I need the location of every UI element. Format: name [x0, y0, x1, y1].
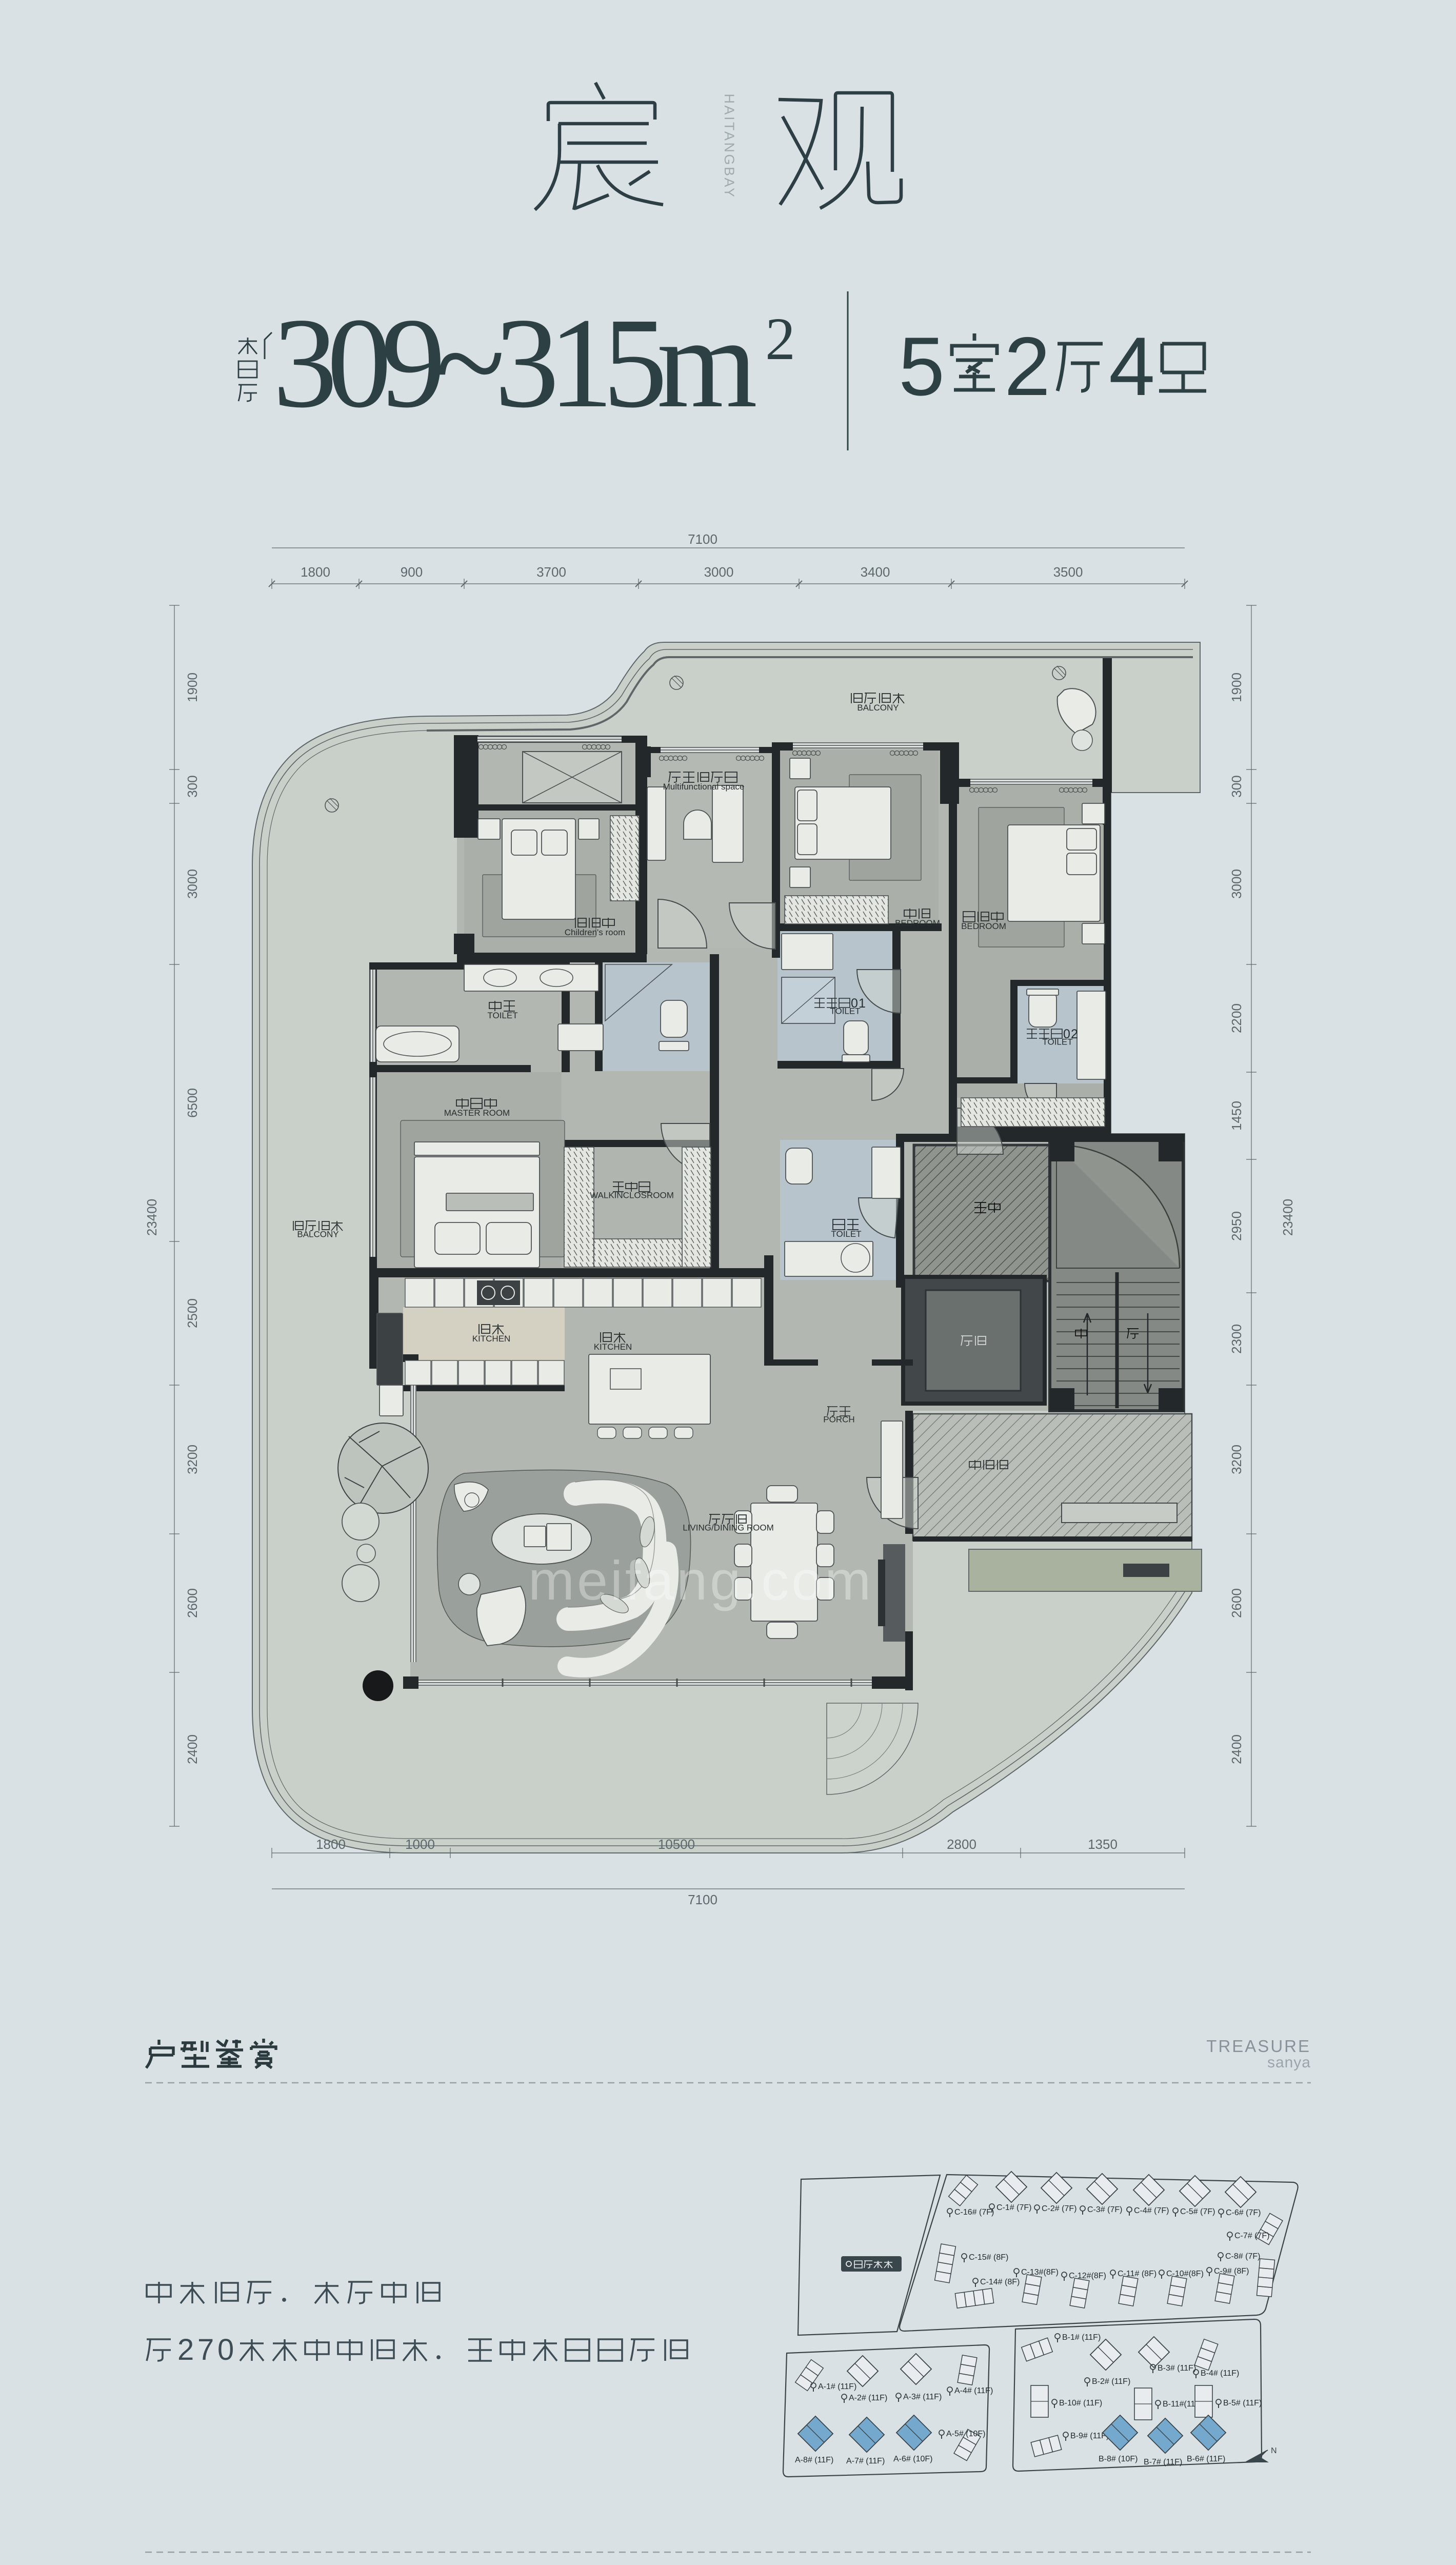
svg-text:1900: 1900	[185, 673, 200, 702]
svg-text:A-2# (11F): A-2# (11F)	[849, 2394, 887, 2402]
svg-text:3500: 3500	[1053, 564, 1083, 580]
svg-text:PORCH: PORCH	[823, 1414, 854, 1424]
svg-text:C-12#(8F): C-12#(8F)	[1069, 2272, 1106, 2280]
svg-text:1350: 1350	[1088, 1837, 1118, 1852]
svg-text:B-5# (11F): B-5# (11F)	[1223, 2399, 1262, 2408]
svg-text:meifang.com: meifang.com	[528, 1549, 873, 1611]
svg-text:B-10# (11F): B-10# (11F)	[1059, 2399, 1102, 2408]
svg-text:6500: 6500	[185, 1088, 200, 1118]
svg-text:LIVING/DINING ROOM: LIVING/DINING ROOM	[683, 1523, 774, 1532]
svg-text:2950: 2950	[1229, 1211, 1244, 1241]
svg-text:3000: 3000	[185, 869, 200, 899]
svg-text:C-13#(8F): C-13#(8F)	[1021, 2268, 1059, 2277]
svg-text:0: 0	[217, 2333, 234, 2366]
svg-text:C-9# (8F): C-9# (8F)	[1214, 2267, 1249, 2276]
svg-text:sanya: sanya	[1267, 2054, 1311, 2071]
svg-text:TOILET: TOILET	[487, 1011, 517, 1020]
svg-text:HAITANGBAY: HAITANGBAY	[722, 93, 737, 199]
svg-text:C-7# (7F): C-7# (7F)	[1234, 2232, 1269, 2240]
svg-text:10500: 10500	[658, 1837, 695, 1852]
svg-text:B-1# (11F): B-1# (11F)	[1062, 2333, 1101, 2342]
svg-text:300: 300	[185, 775, 200, 797]
svg-text:3200: 3200	[185, 1445, 200, 1474]
svg-text:2600: 2600	[185, 1588, 200, 1618]
svg-text:309~315m: 309~315m	[273, 291, 757, 435]
svg-text:Multifunctional space: Multifunctional space	[663, 782, 745, 792]
svg-text:B-7# (11F): B-7# (11F)	[1144, 2458, 1182, 2467]
svg-text:C-8# (7F): C-8# (7F)	[1225, 2252, 1260, 2261]
svg-text:23400: 23400	[144, 1199, 159, 1236]
svg-text:A-8# (11F): A-8# (11F)	[795, 2456, 833, 2464]
svg-text:C-11# (8F): C-11# (8F)	[1118, 2270, 1156, 2278]
svg-text:2300: 2300	[1229, 1324, 1244, 1354]
svg-text:300: 300	[1229, 775, 1244, 797]
svg-text:BEDROOM: BEDROOM	[895, 918, 940, 928]
svg-text:1450: 1450	[1229, 1101, 1244, 1131]
svg-text:BALCONY: BALCONY	[857, 703, 899, 713]
svg-text:B-8# (10F): B-8# (10F)	[1099, 2455, 1138, 2463]
svg-text:2800: 2800	[947, 1837, 976, 1852]
svg-text:2200: 2200	[1229, 1003, 1244, 1033]
svg-text:C-10#(8F): C-10#(8F)	[1166, 2270, 1204, 2278]
svg-text:BALCONY: BALCONY	[297, 1229, 338, 1239]
svg-text:1800: 1800	[301, 564, 330, 580]
svg-text:A-7# (11F): A-7# (11F)	[846, 2457, 885, 2465]
svg-text:3000: 3000	[1229, 869, 1244, 899]
svg-text:4: 4	[1109, 320, 1155, 413]
svg-text:WALKINCLOSROOM: WALKINCLOSROOM	[590, 1190, 674, 1200]
svg-text:2400: 2400	[185, 1734, 200, 1764]
svg-text:5: 5	[899, 320, 945, 413]
svg-text:2600: 2600	[1229, 1588, 1244, 1618]
svg-text:C-15# (8F): C-15# (8F)	[969, 2253, 1008, 2262]
svg-text:KITCHEN: KITCHEN	[594, 1342, 632, 1352]
svg-text:TREASURE: TREASURE	[1206, 2037, 1311, 2056]
svg-text:BEDROOM: BEDROOM	[961, 921, 1006, 931]
svg-text:2: 2	[177, 2333, 194, 2366]
svg-text:1900: 1900	[1229, 673, 1244, 702]
svg-text:C-5# (7F): C-5# (7F)	[1180, 2207, 1215, 2216]
svg-text:B-4# (11F): B-4# (11F)	[1201, 2369, 1239, 2378]
svg-text:C-6# (7F): C-6# (7F)	[1226, 2208, 1261, 2217]
svg-text:3400: 3400	[861, 564, 890, 580]
svg-text:C-1# (7F): C-1# (7F)	[996, 2203, 1031, 2212]
svg-text:C-4# (7F): C-4# (7F)	[1134, 2206, 1169, 2215]
svg-text:23400: 23400	[1280, 1199, 1295, 1236]
svg-text:A-5# (10F): A-5# (10F)	[946, 2430, 985, 2438]
svg-text:3000: 3000	[704, 564, 734, 580]
svg-text:3700: 3700	[536, 564, 566, 580]
svg-text:B-2# (11F): B-2# (11F)	[1092, 2377, 1130, 2386]
svg-text:TOILET: TOILET	[1042, 1037, 1072, 1047]
svg-text:7: 7	[197, 2333, 214, 2366]
svg-text:C-16# (7F): C-16# (7F)	[954, 2208, 994, 2217]
svg-text:A-6# (10F): A-6# (10F)	[893, 2455, 932, 2463]
svg-text:C-3# (7F): C-3# (7F)	[1087, 2205, 1122, 2214]
svg-text:MASTER ROOM: MASTER ROOM	[444, 1108, 510, 1118]
svg-text:A-1# (11F): A-1# (11F)	[818, 2382, 856, 2391]
svg-text:Children's room: Children's room	[565, 928, 626, 937]
svg-text:1000: 1000	[405, 1837, 435, 1852]
svg-text:1800: 1800	[316, 1837, 346, 1852]
svg-text:2: 2	[765, 305, 795, 372]
svg-text:A-3# (11F): A-3# (11F)	[903, 2393, 942, 2401]
svg-text:B-6# (11F): B-6# (11F)	[1187, 2455, 1225, 2463]
svg-text:TOILET: TOILET	[831, 1229, 861, 1239]
svg-text:A-4# (11F): A-4# (11F)	[954, 2386, 993, 2395]
svg-text:7100: 7100	[688, 1892, 717, 1907]
svg-text:3200: 3200	[1229, 1445, 1244, 1474]
svg-text:2500: 2500	[185, 1298, 200, 1328]
svg-text:7100: 7100	[688, 531, 717, 547]
svg-text:TOILET: TOILET	[830, 1006, 860, 1016]
svg-text:2: 2	[1004, 320, 1050, 413]
svg-text:C-2# (7F): C-2# (7F)	[1042, 2204, 1076, 2213]
svg-text:B-3# (11F): B-3# (11F)	[1158, 2364, 1196, 2373]
svg-text:KITCHEN: KITCHEN	[472, 1334, 511, 1344]
svg-text:900: 900	[401, 564, 423, 580]
svg-text:2400: 2400	[1229, 1734, 1244, 1764]
svg-text:C-14# (8F): C-14# (8F)	[980, 2278, 1020, 2286]
svg-text:N: N	[1271, 2446, 1277, 2455]
